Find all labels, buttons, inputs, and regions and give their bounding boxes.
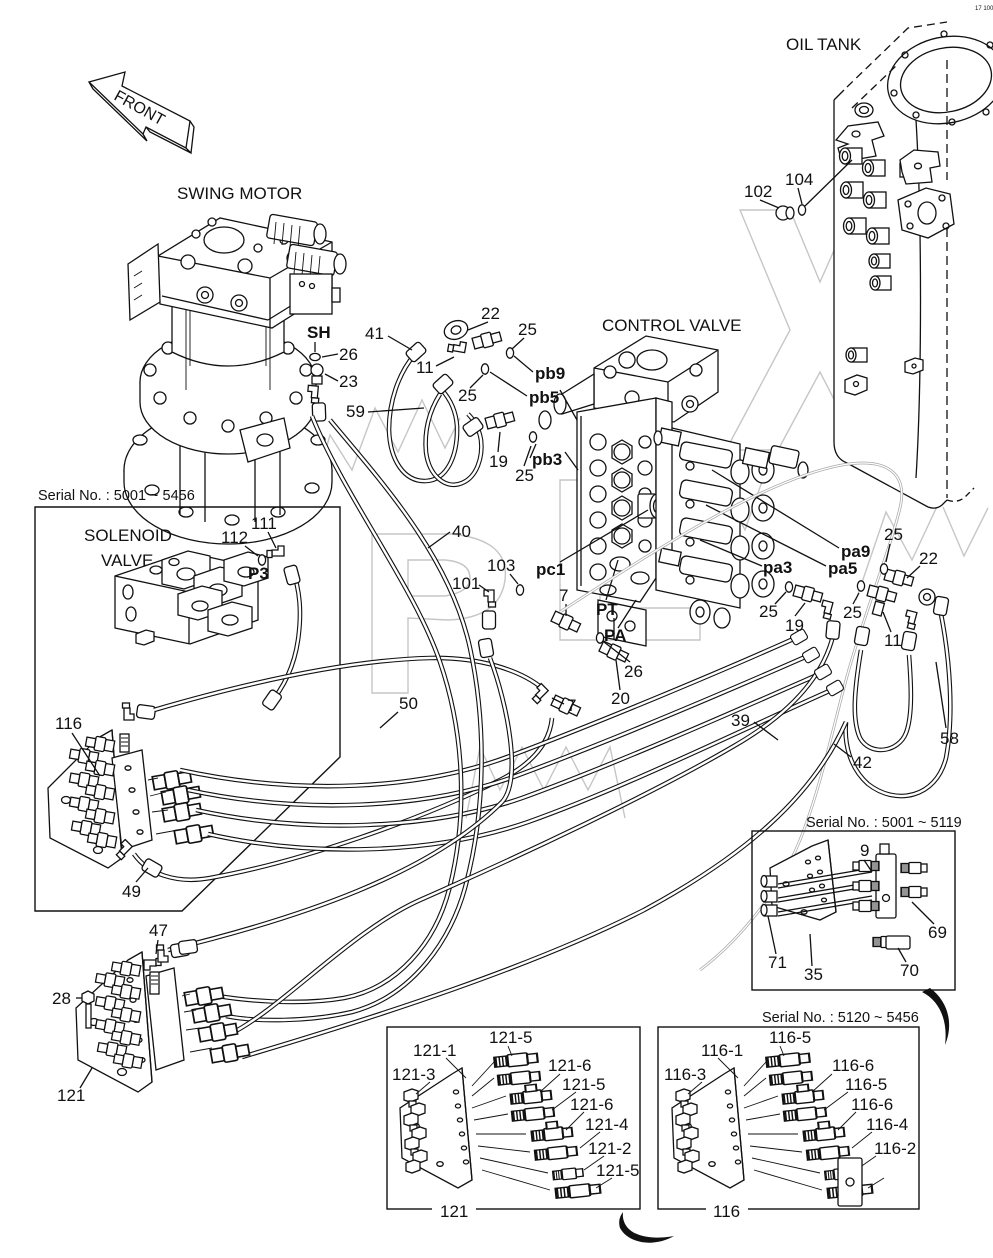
svg-text:26: 26 — [339, 345, 358, 364]
svg-text:Serial No. : 5001 ~ 5119: Serial No. : 5001 ~ 5119 — [806, 815, 962, 831]
svg-text:pb9: pb9 — [535, 364, 565, 383]
svg-text:69: 69 — [928, 923, 947, 942]
svg-text:9: 9 — [860, 841, 869, 860]
svg-text:116: 116 — [55, 714, 82, 733]
svg-text:116-1: 116-1 — [701, 1041, 743, 1060]
svg-text:121-5: 121-5 — [596, 1161, 639, 1180]
svg-text:pa5: pa5 — [828, 559, 857, 578]
svg-text:71: 71 — [768, 953, 787, 972]
svg-text:CONTROL VALVE: CONTROL VALVE — [602, 316, 742, 335]
svg-text:102: 102 — [744, 182, 772, 201]
svg-text:121-3: 121-3 — [392, 1065, 435, 1084]
svg-text:50: 50 — [399, 694, 418, 713]
svg-text:59: 59 — [346, 402, 365, 421]
svg-text:11: 11 — [416, 358, 434, 377]
svg-text:35: 35 — [804, 965, 823, 984]
svg-text:7: 7 — [559, 586, 568, 605]
svg-text:121-5: 121-5 — [489, 1028, 532, 1047]
svg-text:116-5: 116-5 — [845, 1075, 887, 1094]
svg-text:70: 70 — [900, 961, 919, 980]
svg-text:39: 39 — [731, 711, 750, 730]
svg-text:116-4: 116-4 — [866, 1115, 908, 1134]
svg-text:41: 41 — [365, 324, 384, 343]
svg-text:116-6: 116-6 — [832, 1056, 874, 1075]
svg-text:42: 42 — [853, 753, 872, 772]
svg-text:25: 25 — [458, 386, 477, 405]
svg-text:104: 104 — [785, 170, 813, 189]
svg-text:121-2: 121-2 — [588, 1139, 631, 1158]
svg-text:Serial No. : 5001 ~ 5456: Serial No. : 5001 ~ 5456 — [38, 488, 195, 504]
svg-text:121-4: 121-4 — [585, 1115, 628, 1134]
svg-text:47: 47 — [149, 921, 168, 940]
svg-text:SWING MOTOR: SWING MOTOR — [177, 184, 302, 203]
svg-text:PT: PT — [596, 600, 618, 619]
svg-text:116: 116 — [713, 1202, 740, 1221]
svg-text:pb3: pb3 — [532, 450, 562, 469]
svg-text:116-3: 116-3 — [664, 1065, 706, 1084]
svg-text:pa3: pa3 — [763, 558, 792, 577]
svg-text:7: 7 — [567, 696, 576, 715]
svg-text:SH: SH — [307, 323, 331, 342]
svg-text:pa9: pa9 — [841, 542, 870, 561]
svg-text:58: 58 — [940, 729, 959, 748]
svg-text:28: 28 — [52, 989, 71, 1008]
svg-text:25: 25 — [843, 603, 862, 622]
svg-text:11: 11 — [884, 631, 902, 650]
svg-text:121: 121 — [440, 1202, 468, 1221]
svg-text:20: 20 — [611, 689, 630, 708]
svg-text:103: 103 — [487, 556, 515, 575]
svg-text:121-6: 121-6 — [570, 1095, 613, 1114]
svg-text:19: 19 — [785, 616, 804, 635]
svg-text:112: 112 — [221, 528, 248, 547]
svg-text:25: 25 — [759, 602, 778, 621]
svg-text:116-5: 116-5 — [769, 1028, 811, 1047]
svg-text:22: 22 — [481, 304, 500, 323]
svg-text:19: 19 — [489, 452, 508, 471]
svg-text:121: 121 — [57, 1086, 85, 1105]
svg-text:26: 26 — [624, 662, 643, 681]
svg-text:Serial No. : 5120 ~ 5456: Serial No. : 5120 ~ 5456 — [762, 1010, 919, 1026]
svg-text:pb5: pb5 — [529, 388, 559, 407]
svg-text:pc1: pc1 — [536, 560, 565, 579]
svg-text:17 100: 17 100 — [975, 6, 993, 12]
svg-text:49: 49 — [122, 882, 141, 901]
svg-text:SOLENOID: SOLENOID — [84, 526, 172, 545]
svg-text:101: 101 — [452, 574, 480, 593]
svg-text:116-6: 116-6 — [851, 1095, 893, 1114]
svg-text:25: 25 — [884, 525, 903, 544]
svg-text:121-5: 121-5 — [562, 1075, 605, 1094]
svg-text:116-2: 116-2 — [874, 1139, 916, 1158]
svg-text:23: 23 — [339, 372, 358, 391]
svg-text:40: 40 — [452, 522, 471, 541]
svg-text:22: 22 — [919, 549, 938, 568]
svg-text:121-1: 121-1 — [413, 1041, 456, 1060]
svg-text:111: 111 — [251, 514, 277, 533]
svg-text:25: 25 — [518, 320, 537, 339]
svg-text:OIL TANK: OIL TANK — [786, 35, 862, 54]
svg-text:121-6: 121-6 — [548, 1056, 591, 1075]
svg-text:P3: P3 — [248, 564, 269, 583]
